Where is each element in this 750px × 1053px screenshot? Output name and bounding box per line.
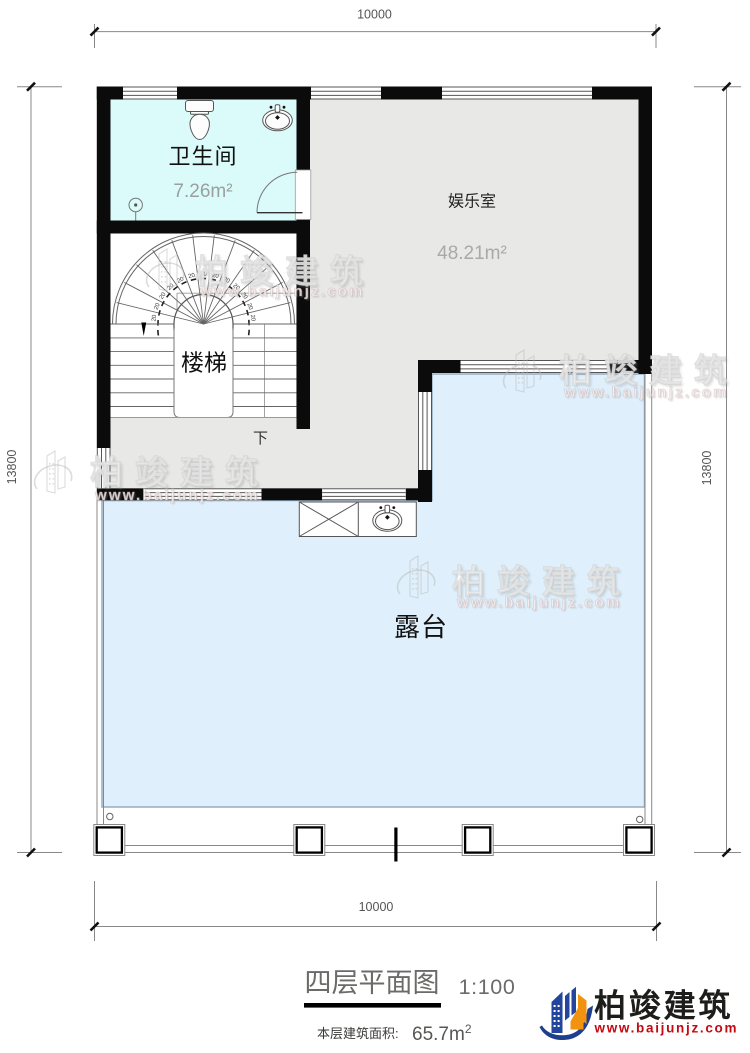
svg-text:10000: 10000: [359, 900, 394, 914]
svg-text:下: 下: [253, 430, 268, 447]
svg-text:13800: 13800: [700, 451, 714, 486]
svg-text:10000: 10000: [357, 8, 392, 22]
svg-text:48.21m²: 48.21m²: [437, 243, 507, 264]
svg-text:13800: 13800: [5, 450, 19, 485]
svg-text:www.baijunjz.com: www.baijunjz.com: [594, 1021, 739, 1036]
svg-text:卫生间: 卫生间: [168, 144, 237, 169]
svg-text:本层建筑面积:: 本层建筑面积:: [317, 1026, 399, 1041]
svg-text:65.7m2: 65.7m2: [412, 1022, 472, 1045]
svg-text:柏竣建筑: 柏竣建筑: [594, 988, 733, 1024]
svg-text:1:100: 1:100: [459, 975, 516, 999]
svg-text:7.26m²: 7.26m²: [173, 181, 232, 202]
svg-text:楼梯: 楼梯: [181, 350, 227, 376]
svg-text:20: 20: [200, 272, 207, 278]
svg-text:娱乐室: 娱乐室: [448, 193, 496, 211]
svg-text:20: 20: [151, 314, 158, 322]
svg-text:20: 20: [159, 291, 168, 300]
svg-text:四层平面图: 四层平面图: [305, 968, 440, 998]
svg-text:20: 20: [249, 314, 256, 322]
svg-text:20: 20: [245, 302, 253, 311]
svg-text:露台: 露台: [394, 612, 448, 642]
svg-text:20: 20: [154, 302, 162, 311]
svg-text:20: 20: [231, 283, 240, 292]
